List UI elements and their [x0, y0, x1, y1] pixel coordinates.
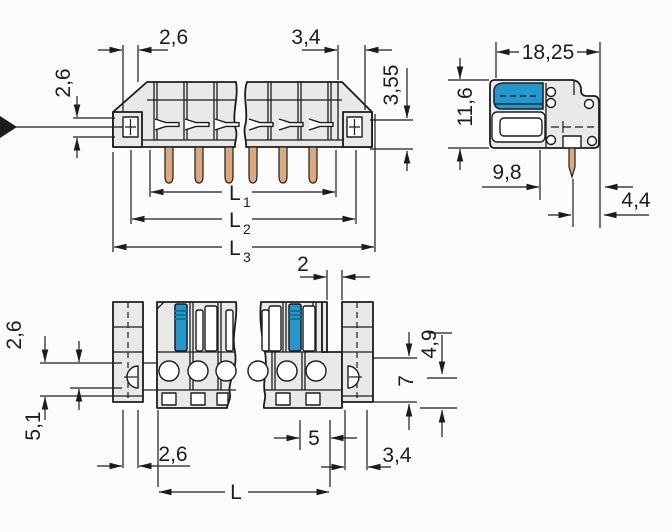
pin-slot — [191, 393, 205, 405]
solder-pin — [195, 147, 203, 183]
dim-side-depth: 9,8 — [482, 150, 540, 200]
dim-front-right-height: 3,55 — [370, 65, 413, 171]
solder-pin — [225, 147, 233, 183]
dim-label-bottom-left-flange: 5,1 — [22, 411, 45, 440]
dim-label-bottom-right-edge: 3,4 — [382, 444, 412, 467]
connector-dimension-drawing: 2,6 3,4 3,55 2,6 L 1 — [0, 0, 672, 532]
pin-slot — [276, 393, 290, 405]
contact-hole — [277, 361, 297, 381]
dim-bottom-right-edge: 3,4 — [321, 410, 412, 470]
dim-label-L3: L — [229, 237, 241, 260]
dim-label-bottom-right-flange: 7 — [395, 375, 418, 387]
dim-label-bottom-last-pitch: 5 — [308, 427, 320, 450]
dim-label-L2-sub: 2 — [243, 221, 251, 237]
dim-label-bottom-flange-width: 2,6 — [158, 443, 187, 466]
latch-hole — [585, 100, 594, 109]
dim-label-front-top-right: 3,4 — [291, 26, 321, 49]
dim-bottom-right-flange: 7 — [395, 332, 418, 430]
dim-bottom-gap: 2 — [297, 253, 370, 300]
latch-hole — [588, 137, 597, 146]
contact-hole — [306, 361, 326, 381]
dim-label-side-width: 18,25 — [522, 41, 575, 64]
solder-pin-side — [569, 148, 575, 177]
dim-label-L2: L — [229, 209, 241, 232]
dim-label-front-left-hole: 2,6 — [52, 68, 75, 97]
contact-hole — [188, 361, 208, 381]
dim-label-L1: L — [229, 182, 241, 205]
solder-pin — [279, 147, 287, 183]
pin-base — [563, 136, 581, 148]
dim-label-L1-sub: 1 — [243, 194, 251, 210]
dim-label-L3-sub: 3 — [243, 249, 251, 265]
dim-label-side-height: 11,6 — [454, 87, 477, 126]
solder-pin — [309, 147, 317, 183]
latch-hole — [547, 136, 556, 145]
dim-bottom-flange-width: 2,6 — [97, 410, 190, 468]
clamp-frame-inner — [500, 118, 542, 136]
pin-slot — [162, 393, 176, 405]
contact-hole — [159, 361, 179, 381]
dim-label-bottom-length: L — [230, 481, 242, 504]
dim-label-side-depth: 9,8 — [492, 161, 521, 184]
dim-label-bottom-left-hole: 2,6 — [3, 320, 26, 349]
latch-hole — [547, 88, 556, 97]
dim-label-bottom-right-offset: 4,9 — [418, 329, 441, 358]
solder-pin — [249, 147, 257, 183]
dim-label-front-right-height: 3,55 — [380, 65, 403, 106]
left-edge-arrow — [0, 116, 17, 138]
latch-hole — [547, 99, 556, 108]
dim-label-front-top-left: 2,6 — [159, 26, 188, 49]
dim-side-height: 11,6 — [448, 58, 489, 170]
pin-slot — [306, 393, 320, 405]
pin-slot — [217, 393, 228, 405]
dim-label-bottom-gap: 2 — [297, 253, 309, 276]
front-view — [113, 82, 372, 183]
dim-front-left-hole: 2,6 — [0, 68, 123, 158]
dim-L1: L 1 — [150, 150, 336, 210]
bottom-view — [113, 302, 373, 408]
technical-drawing-canvas: 2,6 3,4 3,55 2,6 L 1 — [0, 0, 672, 532]
contact-hole — [248, 361, 268, 381]
solder-pin — [165, 147, 173, 183]
dim-label-side-pin-edge: 4,4 — [621, 189, 651, 212]
contact-hole — [216, 361, 236, 381]
